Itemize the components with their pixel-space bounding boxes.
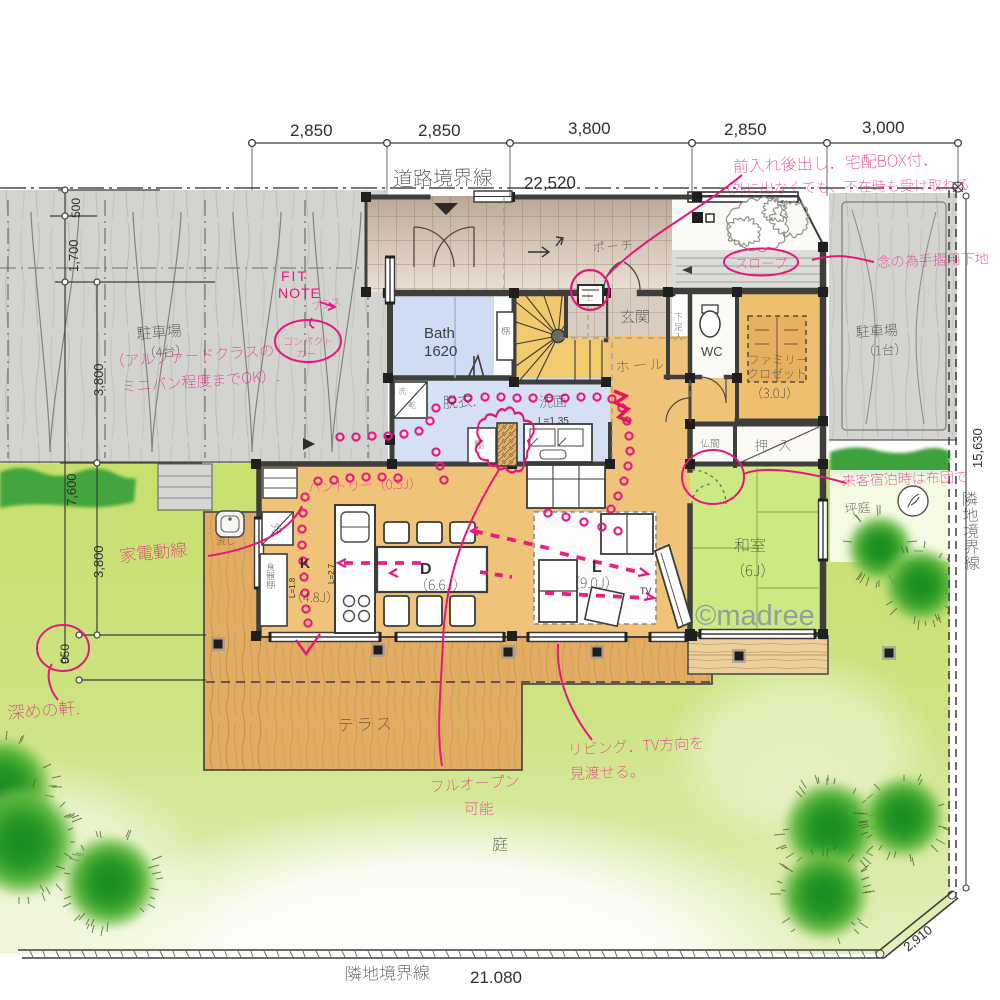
svg-text:FIT: FIT	[281, 268, 308, 284]
svg-text:3,800: 3,800	[91, 363, 106, 396]
svg-text:WC: WC	[701, 344, 723, 359]
svg-text:©madree: ©madree	[695, 600, 815, 632]
svg-text:3,800: 3,800	[91, 545, 106, 578]
svg-text:L=2.7: L=2.7	[327, 563, 336, 584]
svg-text:NOTE: NOTE	[278, 285, 321, 301]
svg-text:15,630: 15,630	[970, 428, 985, 468]
svg-text:L=1.35: L=1.35	[538, 416, 569, 427]
svg-text:TV: TV	[640, 586, 652, 596]
svg-text:2,850: 2,850	[290, 121, 333, 140]
svg-text:L=1.8: L=1.8	[288, 577, 297, 598]
svg-text:L: L	[592, 559, 602, 576]
svg-text:Bath: Bath	[424, 325, 455, 342]
svg-text:3,000: 3,000	[862, 118, 905, 137]
svg-text:K: K	[300, 555, 310, 571]
svg-text:1,700: 1,700	[66, 239, 81, 272]
svg-text:2,850: 2,850	[418, 121, 461, 140]
svg-text:2,850: 2,850	[724, 120, 767, 139]
svg-text:500: 500	[69, 198, 83, 218]
svg-text:22,520: 22,520	[524, 173, 576, 193]
svg-text:1620: 1620	[424, 343, 457, 360]
svg-text:D: D	[420, 561, 432, 578]
svg-text:7,600: 7,600	[64, 473, 79, 506]
svg-text:21.080: 21.080	[470, 968, 522, 987]
svg-text:950: 950	[58, 644, 72, 664]
svg-text:3,800: 3,800	[568, 119, 611, 138]
